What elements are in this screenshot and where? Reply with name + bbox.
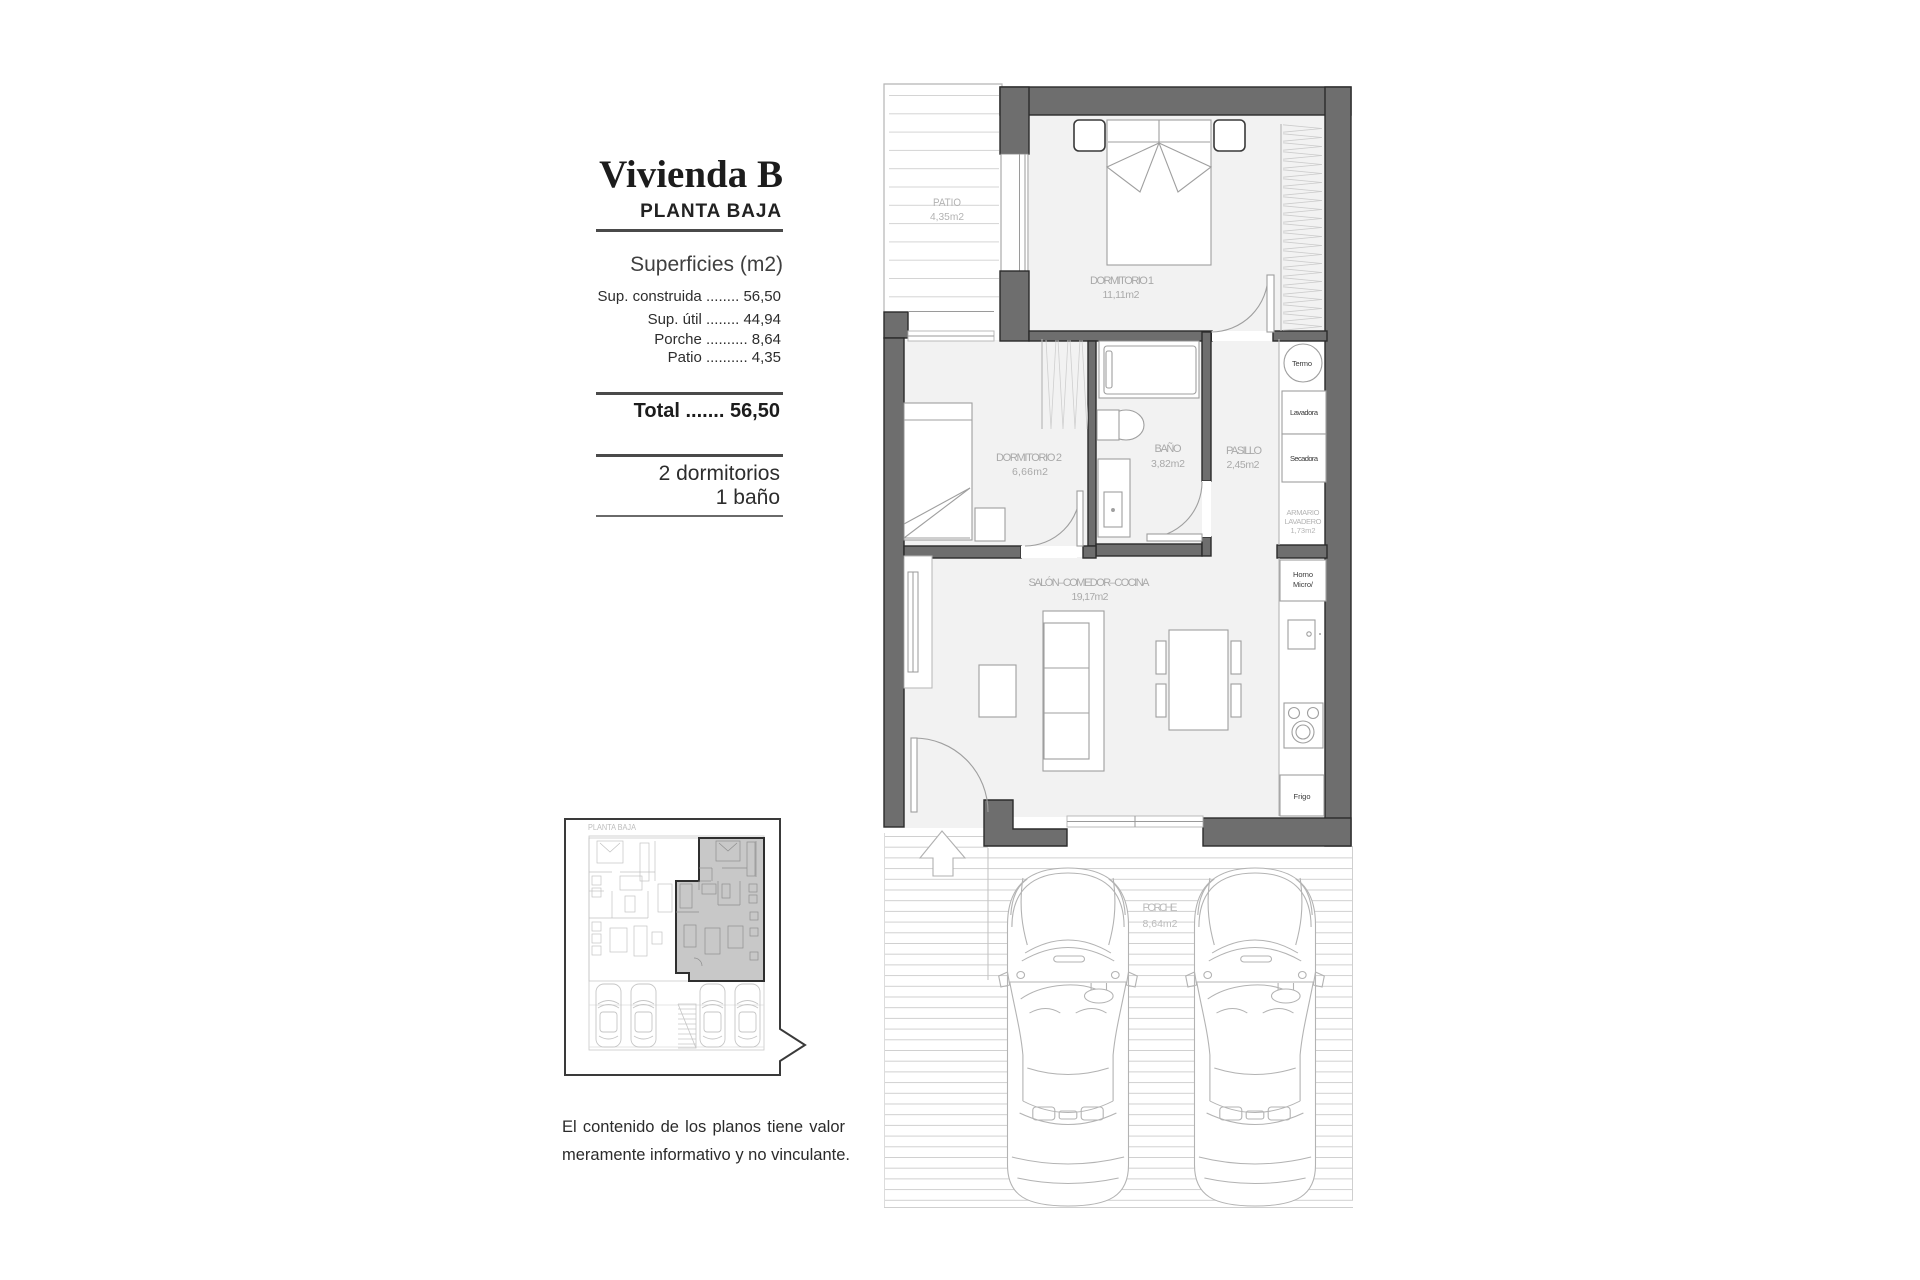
svg-text:PLANTA BAJA: PLANTA BAJA — [588, 822, 636, 832]
svg-text:3,82m2: 3,82m2 — [1151, 458, 1185, 470]
svg-text:SALÓN–COMEDOR–COCINA: SALÓN–COMEDOR–COCINA — [1029, 576, 1151, 589]
svg-text:BAÑO: BAÑO — [1155, 442, 1182, 455]
svg-text:1,73m2: 1,73m2 — [1291, 526, 1316, 535]
svg-text:8,64m2: 8,64m2 — [1143, 918, 1178, 930]
svg-text:2,45m2: 2,45m2 — [1227, 459, 1260, 471]
svg-text:4,35m2: 4,35m2 — [930, 211, 964, 223]
svg-text:PORCHE: PORCHE — [1143, 902, 1178, 914]
svg-text:Frigo: Frigo — [1294, 792, 1311, 801]
svg-text:Secadora: Secadora — [1290, 454, 1319, 463]
svg-text:LAVADERO: LAVADERO — [1285, 517, 1322, 526]
svg-text:Micro/: Micro/ — [1293, 580, 1314, 589]
svg-text:11,11m2: 11,11m2 — [1103, 289, 1140, 301]
svg-text:Horno: Horno — [1293, 570, 1313, 579]
svg-text:ARMARIO: ARMARIO — [1287, 508, 1320, 517]
svg-text:Termo: Termo — [1292, 359, 1312, 368]
svg-text:DORMITORIO 1: DORMITORIO 1 — [1090, 275, 1154, 287]
svg-text:19,17m2: 19,17m2 — [1072, 591, 1109, 603]
svg-text:PASILLO: PASILLO — [1226, 445, 1262, 457]
svg-text:Lavadora: Lavadora — [1290, 408, 1319, 417]
svg-text:6,66m2: 6,66m2 — [1012, 466, 1048, 478]
svg-text:DORMITORIO 2: DORMITORIO 2 — [996, 452, 1062, 464]
svg-text:PATIO: PATIO — [933, 197, 961, 209]
